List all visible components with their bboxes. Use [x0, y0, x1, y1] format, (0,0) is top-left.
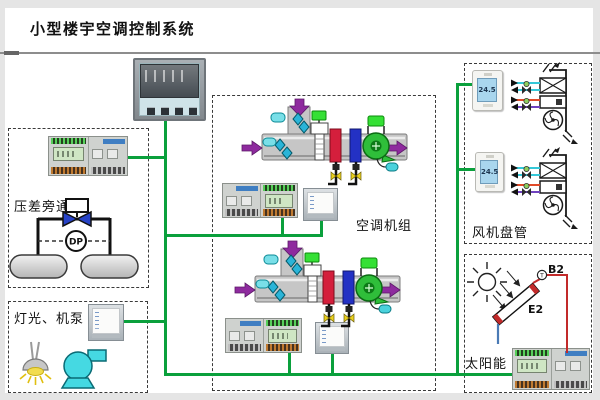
pump-icon — [62, 350, 106, 388]
touch-panel-screen — [92, 308, 120, 334]
page-margin-left — [0, 0, 5, 400]
lighting-pumps-diagram — [18, 340, 118, 392]
fcu-unit-2 — [511, 147, 578, 229]
hmi-button — [175, 107, 183, 115]
solar-diagram: T B2 E2 — [462, 256, 592, 358]
bus-drop-ahu2-panel — [331, 353, 334, 375]
thermostat-1: 24.5 — [472, 70, 503, 111]
title-underline — [0, 52, 600, 54]
sun-icon — [467, 262, 507, 302]
title-underline-stub — [4, 51, 19, 55]
bus-line-pressure — [127, 156, 166, 159]
dp-sensor-label: DP — [69, 238, 83, 248]
hmi-button — [147, 107, 155, 115]
controller-lcd — [517, 359, 547, 373]
hmi-button — [161, 107, 169, 115]
page-margin-top — [0, 0, 600, 8]
e2-label: E2 — [528, 303, 543, 316]
ahu-unit-2 — [235, 241, 400, 326]
page-title: 小型楼宇空调控制系统 — [30, 18, 195, 39]
tank-icon — [81, 255, 138, 278]
ahu-unit-1 — [242, 99, 407, 184]
controller-lcd — [53, 147, 84, 161]
hmi-panel — [133, 58, 206, 121]
thermostat-display: 24.5 — [477, 78, 497, 102]
bus-drop-ahu2-controller — [288, 352, 291, 375]
thermostat-2: 24.5 — [475, 152, 504, 192]
pressure-bypass-diagram: DP — [10, 195, 145, 283]
air-handling-label: 空调机组 — [356, 215, 412, 234]
bus-line-ahu1 — [164, 234, 323, 237]
bus-line-fcu-vertical — [456, 83, 459, 375]
bus-drop-ahu1-controller — [281, 217, 284, 236]
b2-label: B2 — [548, 263, 564, 276]
page-margin-right — [593, 0, 600, 400]
din-controller-pressure — [48, 136, 128, 176]
temp-sensor-letter: T — [539, 273, 544, 280]
hmi-screen — [140, 64, 199, 98]
bus-drop-ahu1-panel — [320, 220, 323, 236]
touch-panel-lighting — [88, 304, 124, 341]
lighting-pumps-label: 灯光、机泵 — [14, 308, 84, 327]
hmi-button — [189, 107, 197, 115]
page-margin-bottom — [0, 393, 600, 400]
fcu-unit-1 — [511, 62, 578, 144]
thermostat-display: 24.5 — [480, 160, 498, 184]
tank-icon — [10, 255, 67, 278]
bus-line-lighting — [122, 320, 166, 323]
bus-line-bottom — [164, 373, 514, 376]
page: { "title": "小型楼宇空调控制系统", "sections": { "… — [0, 0, 600, 400]
valve-actuator-icon — [66, 199, 88, 212]
hot-pipe — [547, 275, 568, 353]
